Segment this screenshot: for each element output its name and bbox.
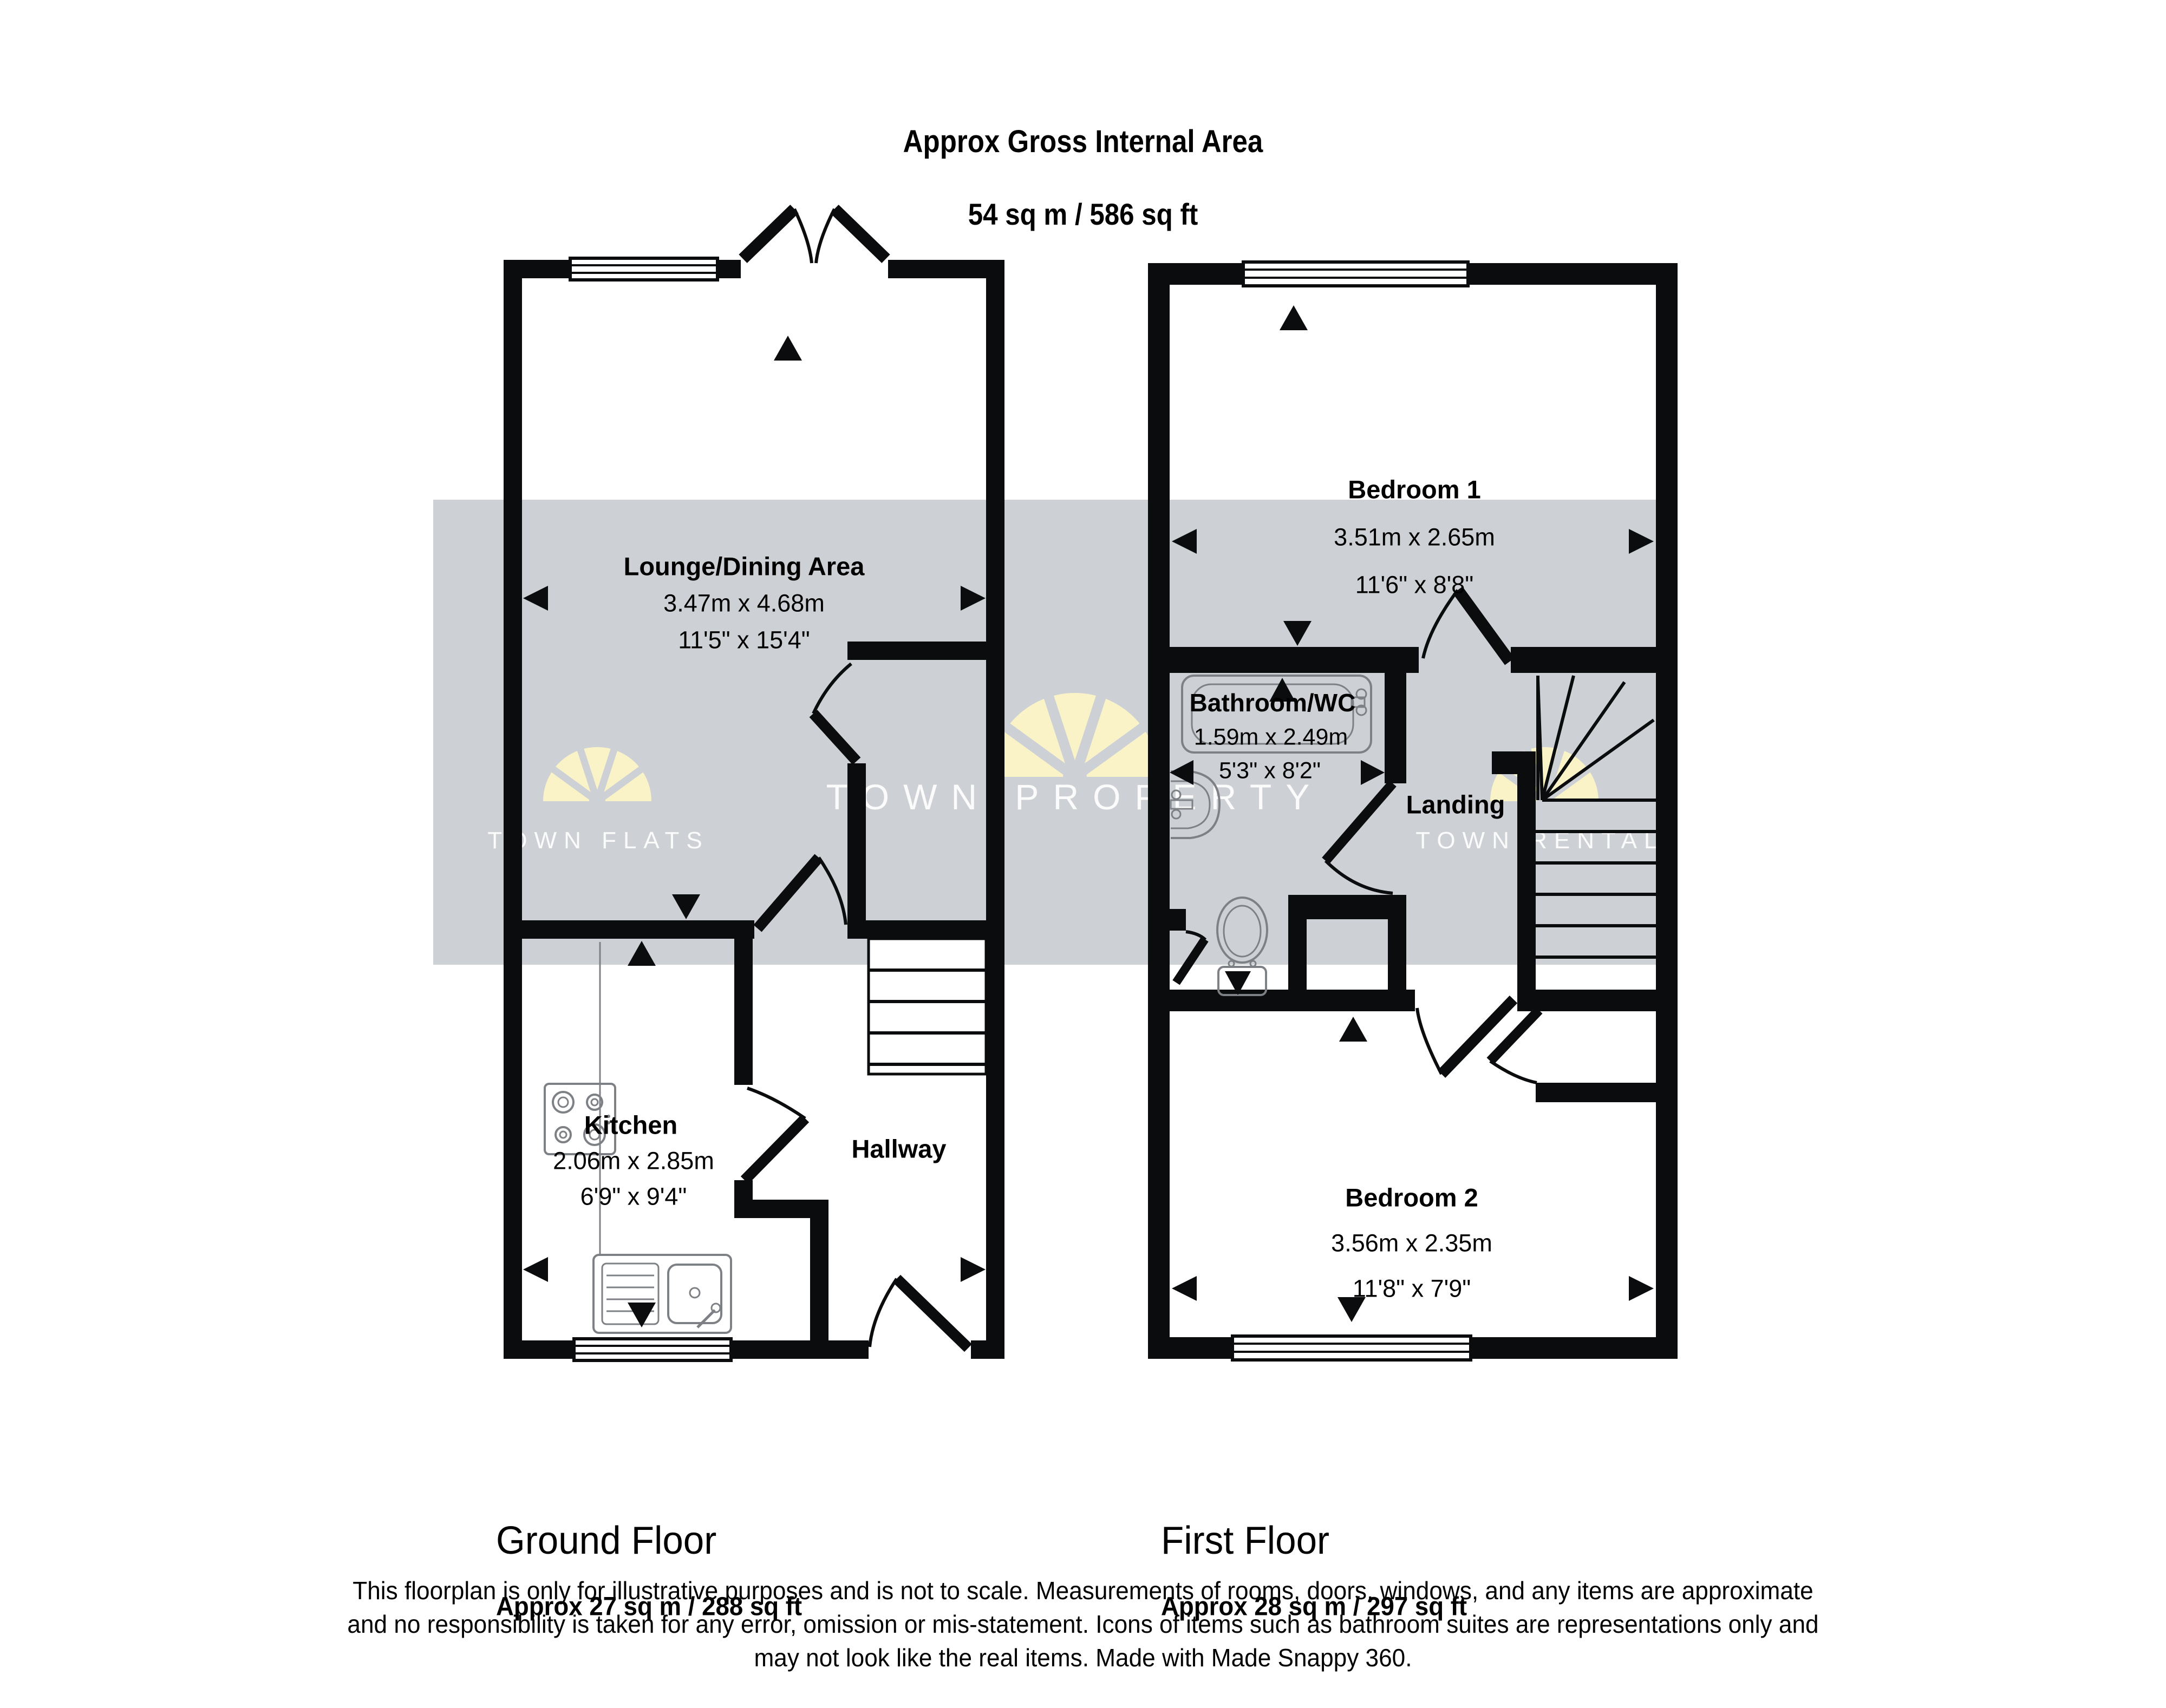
floorplan-page: { "header": { "title": "Approx Gross Int…	[0, 0, 2166, 1708]
kitchen-label: Kitchen	[584, 1113, 677, 1138]
ground-floor-title: Ground Floor	[496, 1519, 716, 1563]
lounge-label: Lounge/Dining Area	[624, 554, 865, 579]
lounge-to-kitchen-door-icon	[758, 858, 846, 928]
disclaimer-line-3: may not look like the real items. Made w…	[754, 1645, 1412, 1670]
bedroom2-window-icon	[1232, 1336, 1471, 1360]
ground-floor-dimension-arrows	[523, 336, 986, 1327]
bedroom1-imperial: 11'6" x 8'8"	[1355, 573, 1473, 597]
lounge-to-hallway-door-icon	[813, 664, 857, 761]
page-title: Approx Gross Internal Area	[903, 126, 1263, 158]
first-floor-stairs-icon	[1536, 676, 1656, 957]
bathroom-label: Bathroom/WC	[1190, 690, 1356, 715]
ground-floor-walls	[504, 260, 1004, 1359]
bathroom-imperial: 5'3" x 8'2"	[1219, 760, 1321, 783]
lounge-imperial: 11'5" x 15'4"	[678, 628, 810, 652]
front-door-icon	[870, 1279, 968, 1348]
bedroom2-imperial: 11'8" x 7'9"	[1353, 1277, 1471, 1301]
bedroom2-metric: 3.56m x 2.35m	[1331, 1231, 1492, 1255]
french-doors-icon	[743, 209, 886, 263]
bedroom1-metric: 3.51m x 2.65m	[1334, 525, 1495, 549]
ground-stairs-icon	[869, 939, 986, 1074]
landing-label: Landing	[1406, 792, 1505, 817]
lounge-window-icon	[570, 258, 717, 280]
lounge-metric: 3.47m x 4.68m	[663, 591, 825, 616]
page-subtitle: 54 sq m / 586 sq ft	[968, 199, 1198, 230]
kitchen-sink-icon	[593, 1255, 731, 1333]
disclaimer-line-1: This floorplan is only for illustrative …	[353, 1578, 1813, 1603]
ground-floor-plan	[487, 189, 1029, 1380]
bedroom2-label: Bedroom 2	[1345, 1185, 1478, 1210]
bedroom2-door-icon	[1417, 999, 1513, 1074]
kitchen-metric: 2.06m x 2.85m	[553, 1149, 714, 1173]
kitchen-door-icon	[745, 1088, 805, 1180]
kitchen-imperial: 6'9" x 9'4"	[580, 1185, 687, 1209]
bathroom-metric: 1.59m x 2.49m	[1194, 726, 1348, 749]
bathroom-door-icon	[1326, 783, 1393, 893]
bathroom-sink-icon	[1171, 771, 1219, 838]
first-floor-title: First Floor	[1161, 1519, 1329, 1563]
bathroom-inner-door-icon	[1176, 932, 1205, 983]
hallway-label: Hallway	[851, 1136, 946, 1162]
bedroom1-label: Bedroom 1	[1348, 477, 1481, 502]
bedroom1-door-icon	[1423, 590, 1510, 662]
bedroom1-window-icon	[1243, 262, 1468, 286]
disclaimer-line-2: and no responsibility is taken for any e…	[347, 1612, 1818, 1637]
kitchen-window-icon	[574, 1339, 731, 1360]
